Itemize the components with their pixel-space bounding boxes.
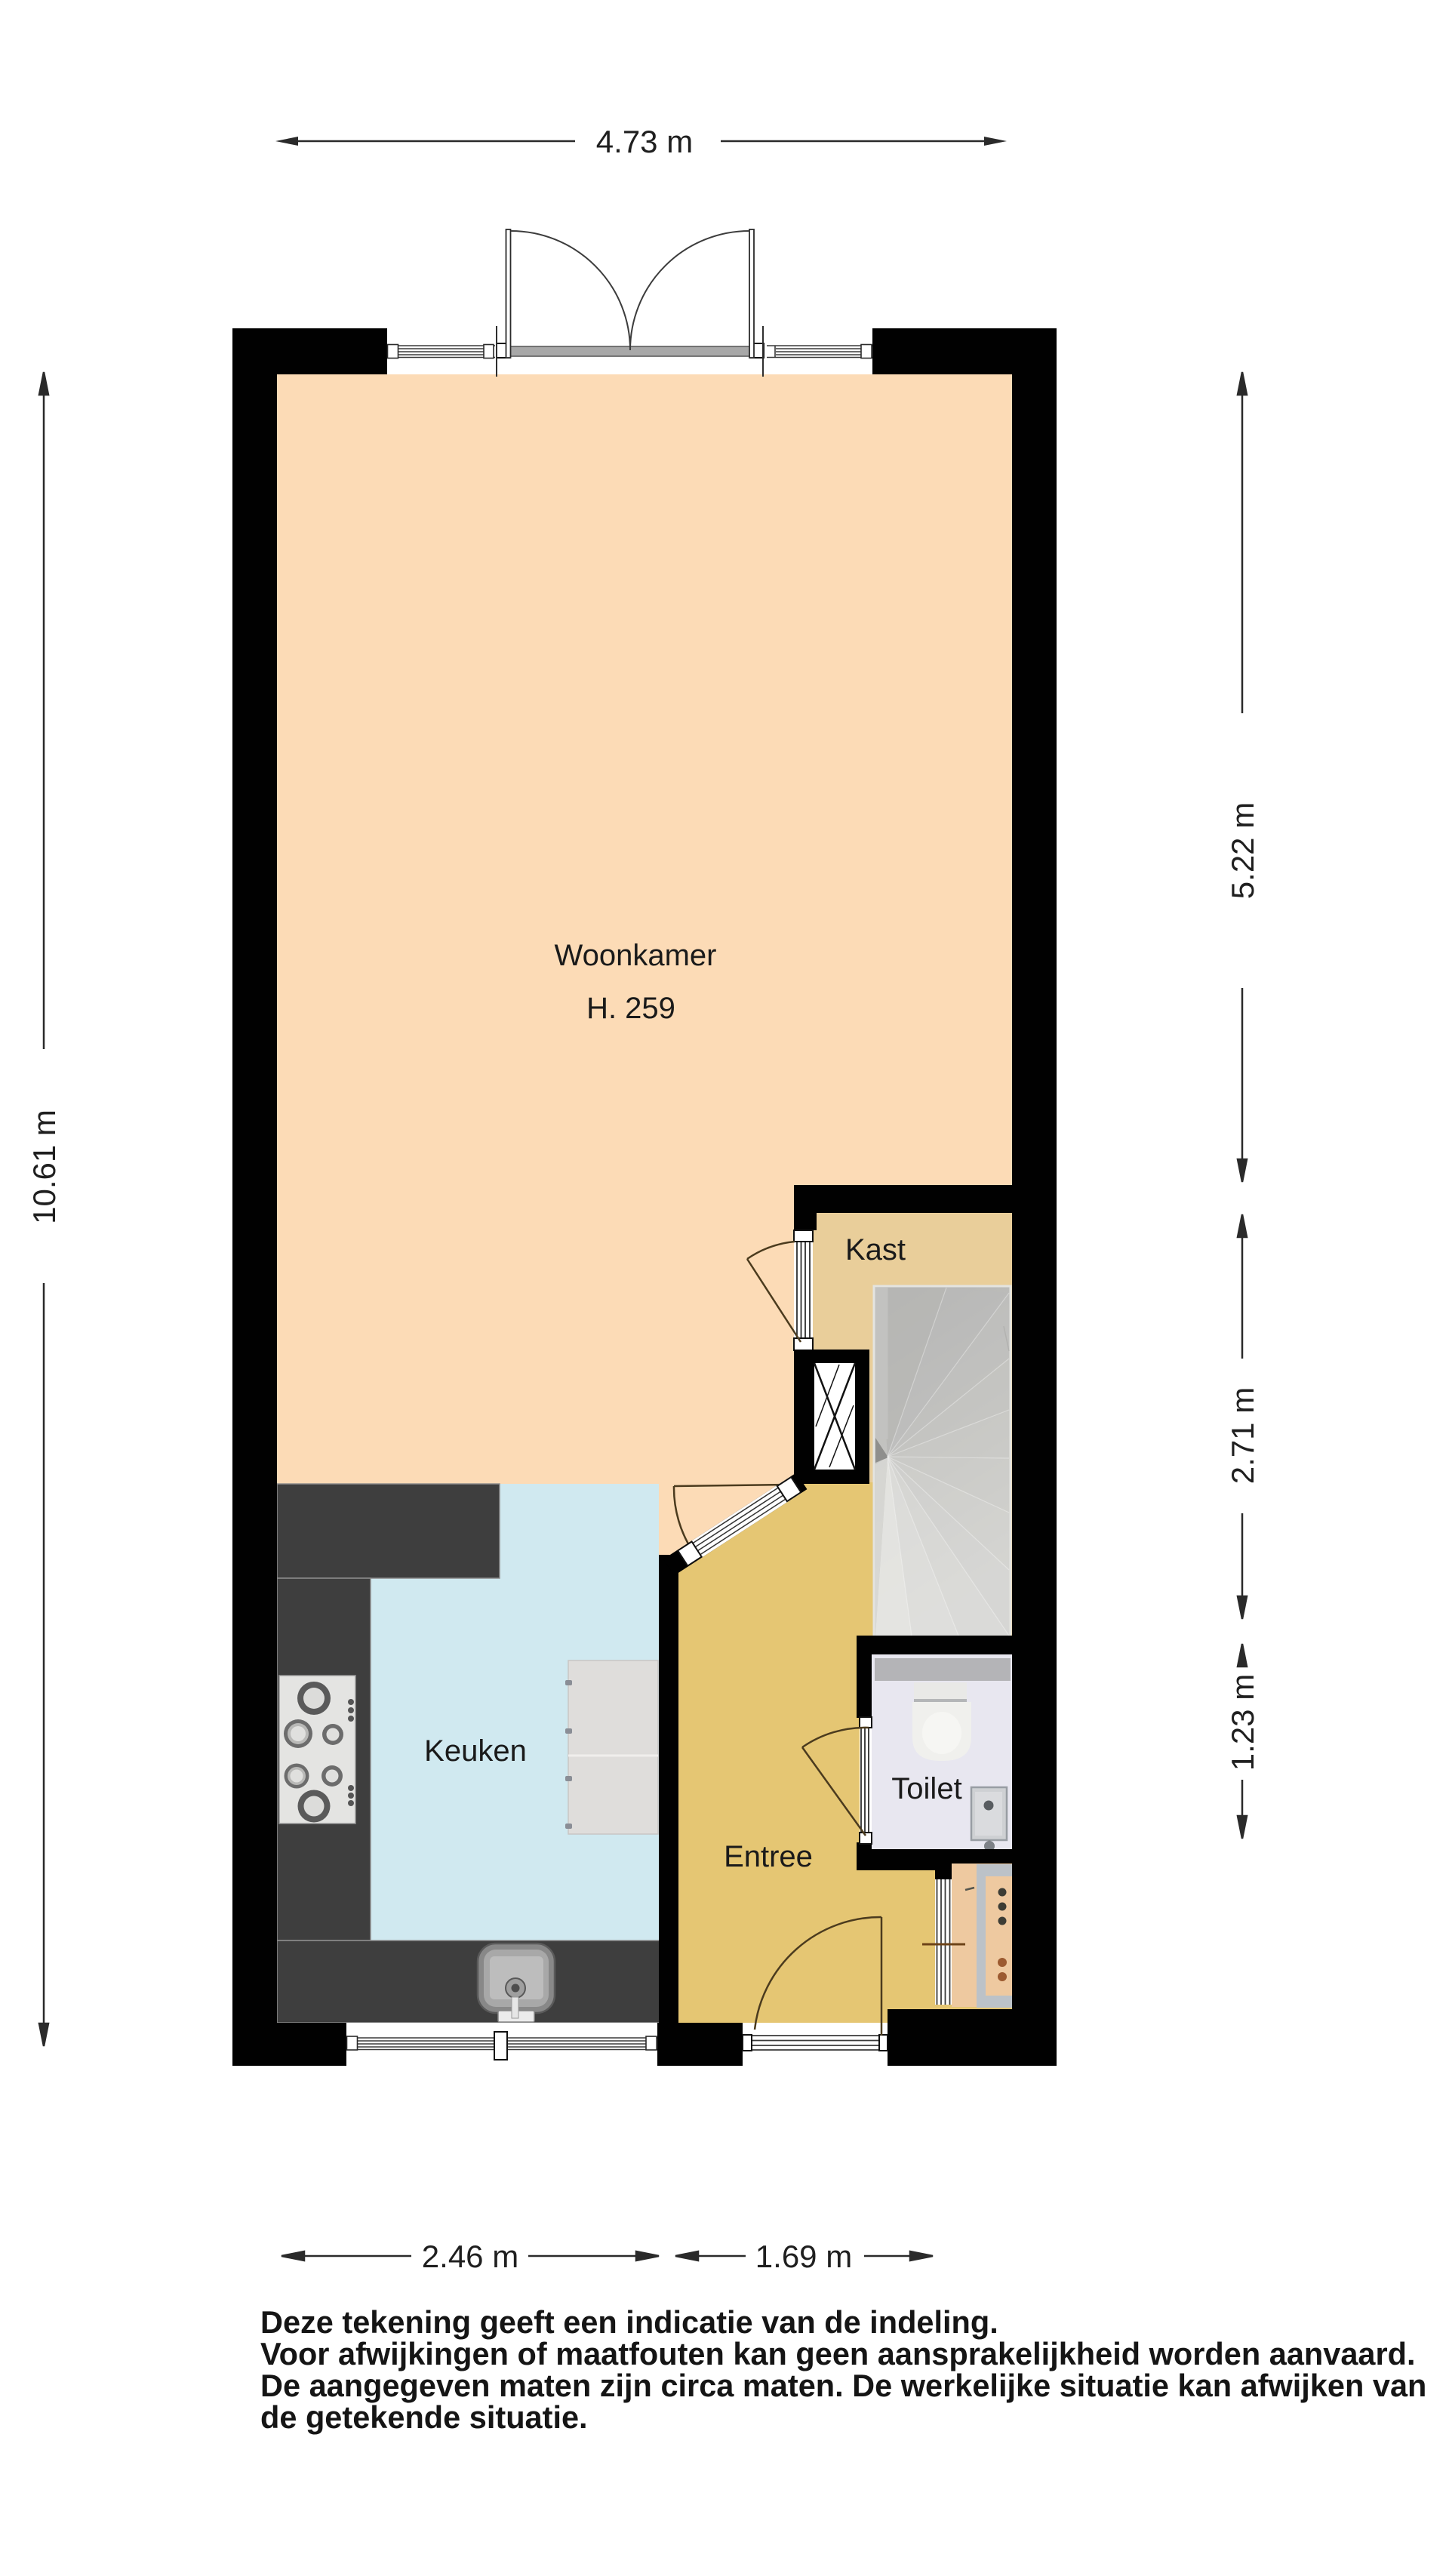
svg-text:2.46 m: 2.46 m — [422, 2239, 518, 2274]
svg-text:De aangegeven maten zijn circa: De aangegeven maten zijn circa maten. De… — [260, 2368, 1426, 2403]
svg-text:Kast: Kast — [845, 1233, 906, 1266]
svg-text:Toilet: Toilet — [891, 1772, 961, 1805]
svg-text:1.23 m: 1.23 m — [1225, 1674, 1260, 1771]
svg-text:Keuken: Keuken — [424, 1734, 527, 1768]
svg-text:5.22 m: 5.22 m — [1225, 802, 1260, 899]
svg-text:de getekende situatie.: de getekende situatie. — [260, 2399, 588, 2435]
svg-text:Woonkamer: Woonkamer — [555, 939, 717, 972]
svg-text:1.69 m: 1.69 m — [755, 2239, 852, 2274]
svg-text:Entree: Entree — [724, 1840, 813, 1873]
svg-text:H. 259: H. 259 — [586, 992, 675, 1025]
svg-text:2.71 m: 2.71 m — [1225, 1387, 1260, 1484]
svg-text:10.61 m: 10.61 m — [26, 1109, 62, 1224]
svg-text:Deze tekening geeft een indica: Deze tekening geeft een indicatie van de… — [260, 2304, 998, 2340]
svg-text:4.73 m: 4.73 m — [596, 124, 693, 159]
svg-text:Voor afwijkingen of maatfoute: Voor afwijkingen of maatfouten kan geen … — [260, 2336, 1416, 2371]
